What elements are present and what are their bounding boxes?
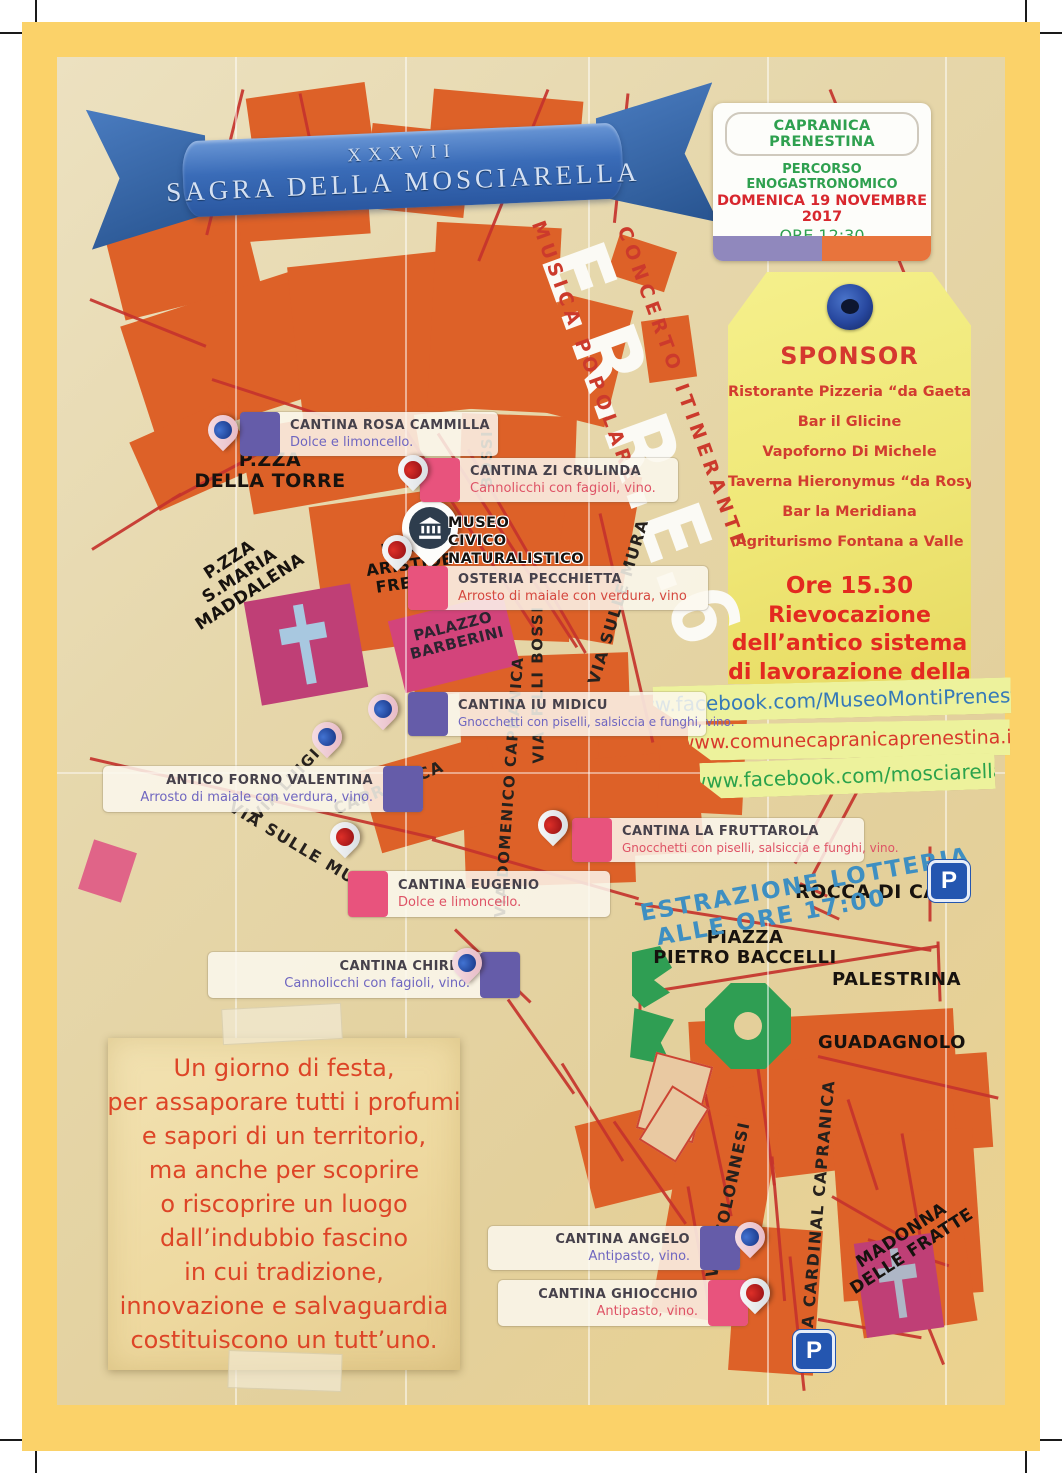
museum-label: MUSEO CIVICO NATURALISTICO xyxy=(448,514,584,568)
stop-dish: Gnocchetti con piselli, salsiccia e fung… xyxy=(622,841,854,855)
stop-dish: Cannolicchi con fagioli, vino. xyxy=(218,976,470,992)
stop-name: CANTINA ZI CRULINDA xyxy=(470,464,668,481)
stop-cantina-eugenio: CANTINA EUGENIODolce e limoncello. xyxy=(348,871,610,917)
sponsor-item: Vapoforno Di Michele xyxy=(728,444,971,460)
sponsor-item: Bar la Meridiana xyxy=(728,504,971,520)
crop-mark xyxy=(35,0,37,24)
tape-strip xyxy=(221,1003,343,1045)
route-swatch-rosso xyxy=(348,871,388,917)
note-line: per assaporare tutti i profumi xyxy=(107,1085,460,1119)
church-smaria-maddalena xyxy=(244,583,369,705)
stop-name: ANTICO FORNO VALENTINA xyxy=(113,773,373,790)
route-swatch-rosso xyxy=(572,818,612,862)
event-type: PERCORSO ENOGASTRONOMICO xyxy=(713,162,931,192)
parking-sign-icon: P xyxy=(928,860,970,902)
route-rosso-strip xyxy=(822,236,931,261)
stop-dish: Antipasto, vino. xyxy=(508,1304,698,1320)
tag-grommet-icon xyxy=(827,284,873,330)
route-swatch-rosso xyxy=(408,566,448,610)
place-line: GUADAGNOLO xyxy=(818,1033,966,1053)
sponsor-item: Ristorante Pizzeria “da Gaetano” xyxy=(728,384,971,400)
stop-dish: Cannolicchi con fagioli, vino. xyxy=(470,481,668,497)
museum-icon xyxy=(409,507,451,549)
link-text: www.facebook.com/mosciarella xyxy=(690,759,1006,794)
stop-name: CANTINA ROSA CAMMILLA xyxy=(290,418,488,435)
sponsor-tag: SPONSOR Ristorante Pizzeria “da Gaetano”… xyxy=(728,272,971,684)
stop-cantina-la-fruttarola: CANTINA LA FRUTTAROLAGnocchetti con pise… xyxy=(572,818,864,862)
poster-sagra-mosciarella: { "banner": {"edition": "XXXVII", "title… xyxy=(0,0,1062,1473)
stop-dish: Gnocchetti con piselli, salsiccia e fung… xyxy=(458,715,696,729)
route-swatch-blu xyxy=(240,412,280,456)
place-line: PALESTRINA xyxy=(832,970,961,990)
event-date: DOMENICA 19 NOVEMBRE 2017 xyxy=(713,193,931,225)
stop-dish: Antipasto, vino. xyxy=(498,1249,690,1265)
note-line: e sapori di un territorio, xyxy=(142,1119,426,1153)
rievocazione-time: Ore 15.30 xyxy=(728,572,971,602)
tape-strip xyxy=(227,1350,342,1392)
stop-antico-forno-valentina: ANTICO FORNO VALENTINAArrosto di maiale … xyxy=(103,766,423,812)
stop-dish: Arrosto di maiale con verdura, vino. xyxy=(113,790,373,806)
place-pzza-della-torre: P.ZZA DELLA TORRE xyxy=(185,450,355,493)
note-line: dall’indubbio fascino xyxy=(160,1221,408,1255)
place-line: DELLA TORRE xyxy=(185,471,355,492)
stop-cantina-angelo: CANTINA ANGELOAntipasto, vino. xyxy=(488,1226,740,1270)
route-color-strip xyxy=(713,236,931,261)
link-text: www.comunecapranicaprenestina.it xyxy=(679,726,1020,754)
place-guadagnolo: GUADAGNOLO xyxy=(818,1033,966,1053)
crop-mark xyxy=(1025,0,1027,24)
stop-name: CANTINA ANGELO xyxy=(498,1232,690,1249)
note-line: in cui tradizione, xyxy=(184,1255,384,1289)
stop-cantina-iu-midicu: CANTINA IU MIDICUGnocchetti con piselli,… xyxy=(408,692,706,736)
rievocazione-line: Rievocazione xyxy=(728,602,971,631)
parking-sign-icon: P xyxy=(793,1330,835,1372)
stop-dish: Arrosto di maiale con verdura, vino xyxy=(458,589,698,605)
ribbon-band: XXXVII SAGRA DELLA MOSCIARELLA xyxy=(181,122,624,217)
sponsor-item: Bar il Glicine xyxy=(728,414,971,430)
route-blu-strip xyxy=(713,236,822,261)
cross-icon xyxy=(275,601,334,688)
stop-cantina-zi-crulinda: CANTINA ZI CRULINDACannolicchi con fagio… xyxy=(420,458,678,502)
place-line: PIETRO BACCELLI xyxy=(645,948,845,968)
note-line: innovazione e salvaguardia xyxy=(120,1289,449,1323)
stop-name: CANTINA LA FRUTTAROLA xyxy=(622,824,854,841)
stop-cantina-rosa-cammilla: CANTINA ROSA CAMMILLADolce e limoncello. xyxy=(240,412,498,456)
stop-name: CANTINA CHIRBA xyxy=(218,959,470,976)
parking-letter: P xyxy=(941,867,957,895)
route-swatch-blu xyxy=(700,1226,740,1270)
event-info-box: CAPRANICA PRENESTINA PERCORSO ENOGASTRON… xyxy=(713,103,931,261)
museum-label-line: CIVICO xyxy=(448,532,584,550)
stop-name: CANTINA IU MIDICU xyxy=(458,698,696,715)
stop-dish: Dolce e limoncello. xyxy=(398,895,600,911)
sponsor-title: SPONSOR xyxy=(728,342,971,370)
stop-osteria-pecchietta: OSTERIA PECCHIETTAArrosto di maiale con … xyxy=(408,566,708,610)
place-palestrina: PALESTRINA xyxy=(832,970,961,990)
festival-description-note: Un giorno di festa, per assaporare tutti… xyxy=(108,1038,460,1370)
route-swatch-blu xyxy=(383,766,423,812)
note-line: o riscoprire un luogo xyxy=(160,1187,407,1221)
stop-dish: Dolce e limoncello. xyxy=(290,435,488,451)
sponsor-item: Agriturismo Fontana a Valle xyxy=(728,534,971,550)
stop-name: CANTINA GHIOCCHIO xyxy=(508,1287,698,1304)
stop-cantina-ghiocchio: CANTINA GHIOCCHIOAntipasto, vino. xyxy=(498,1280,748,1326)
stop-name: CANTINA EUGENIO xyxy=(398,878,600,895)
museum-label-line: MUSEO xyxy=(448,514,584,532)
crop-mark xyxy=(35,1449,37,1473)
note-line: ma anche per scoprire xyxy=(149,1153,419,1187)
note-line: Un giorno di festa, xyxy=(174,1051,395,1085)
green-octagon-hole xyxy=(734,1012,762,1040)
stop-name: OSTERIA PECCHIETTA xyxy=(458,572,698,589)
sponsor-item: Taverna Hieronymus “da Rosy” xyxy=(728,474,971,490)
route-swatch-blu xyxy=(408,692,448,736)
crop-mark xyxy=(1025,1449,1027,1473)
edition-number: XXXVII xyxy=(347,140,457,167)
route-swatch-blu xyxy=(480,952,520,998)
parking-letter: P xyxy=(806,1337,822,1365)
town-name: CAPRANICA PRENESTINA xyxy=(725,112,919,156)
